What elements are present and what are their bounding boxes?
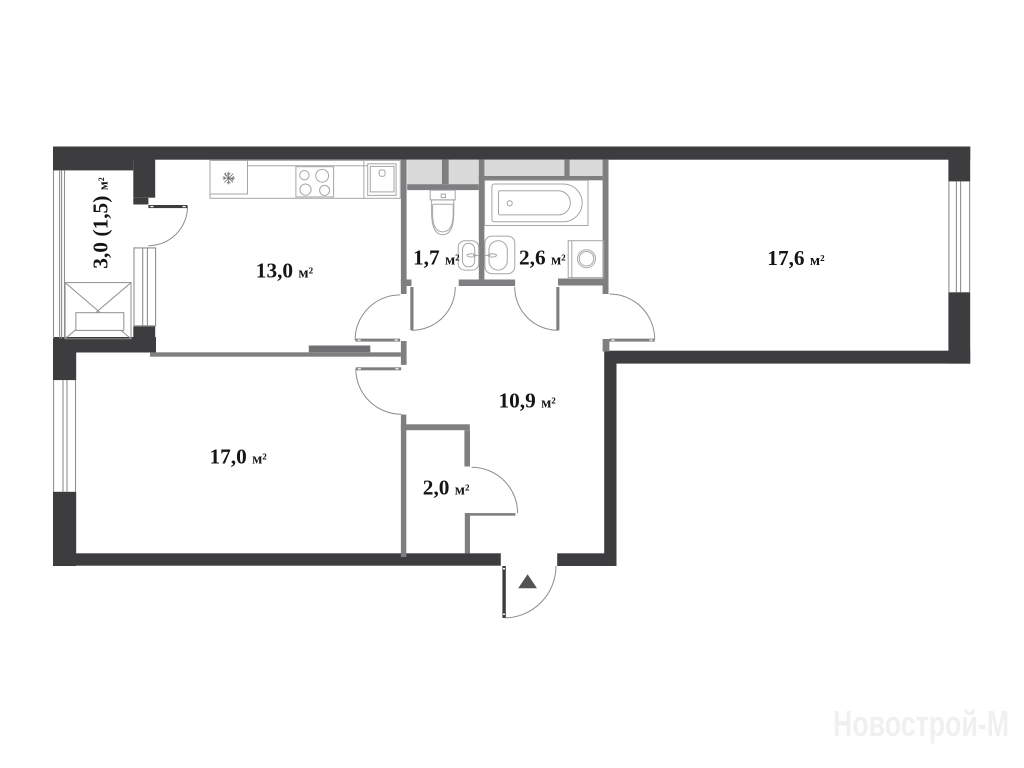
- svg-text:3,0 (1,5) м²: 3,0 (1,5) м²: [89, 177, 113, 269]
- svg-text:Новострой-М: Новострой-М: [833, 703, 1009, 744]
